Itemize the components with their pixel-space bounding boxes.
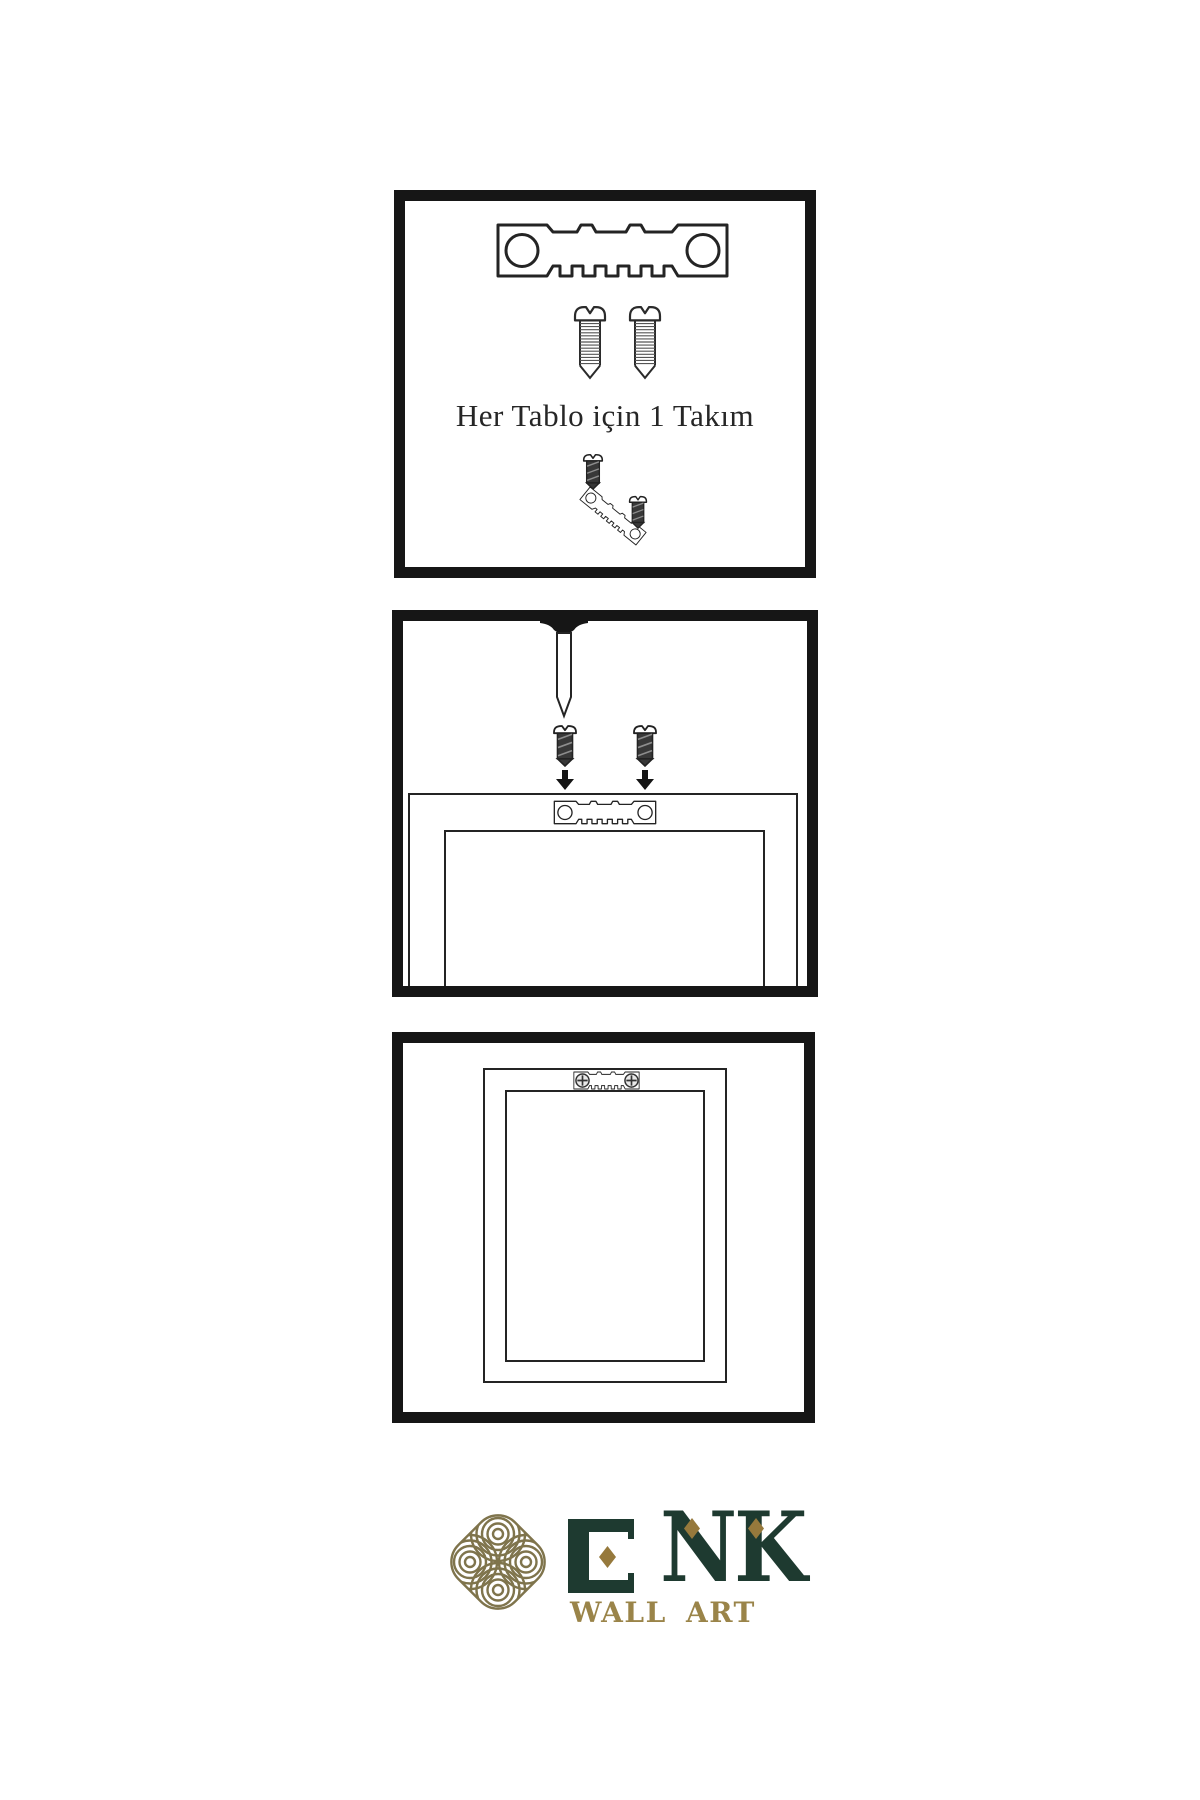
sawtooth-hanger-icon — [553, 800, 657, 825]
down-arrow-icon — [636, 770, 654, 790]
phillips-screw-head-icon — [624, 1073, 639, 1088]
phillips-screw-head-icon — [575, 1073, 590, 1088]
brand-letter-n: N — [660, 1500, 737, 1596]
screw-dark-icon — [552, 724, 578, 767]
kit-caption: Her Tablo için 1 Takım — [405, 398, 805, 434]
brand-letter-k: K — [734, 1500, 807, 1596]
panel-step-1-kit: Her Tablo için 1 Takım — [394, 190, 816, 578]
down-arrow-icon — [556, 770, 574, 790]
screw-icon — [627, 304, 663, 380]
nail-icon — [540, 621, 588, 719]
screw-dark-icon — [628, 495, 648, 529]
screw-dark-icon — [582, 453, 604, 490]
sawtooth-hanger-icon — [495, 222, 730, 279]
brand-tagline: WALL ART — [570, 1596, 756, 1629]
panel-step-3-result — [392, 1032, 815, 1423]
panel-step-2-install — [392, 610, 818, 997]
knot-icon — [436, 1496, 560, 1628]
screw-dark-icon — [632, 724, 658, 767]
artwork-inner-outline — [505, 1090, 705, 1362]
artwork-inner-outline — [444, 830, 765, 997]
screw-icon — [572, 304, 608, 380]
